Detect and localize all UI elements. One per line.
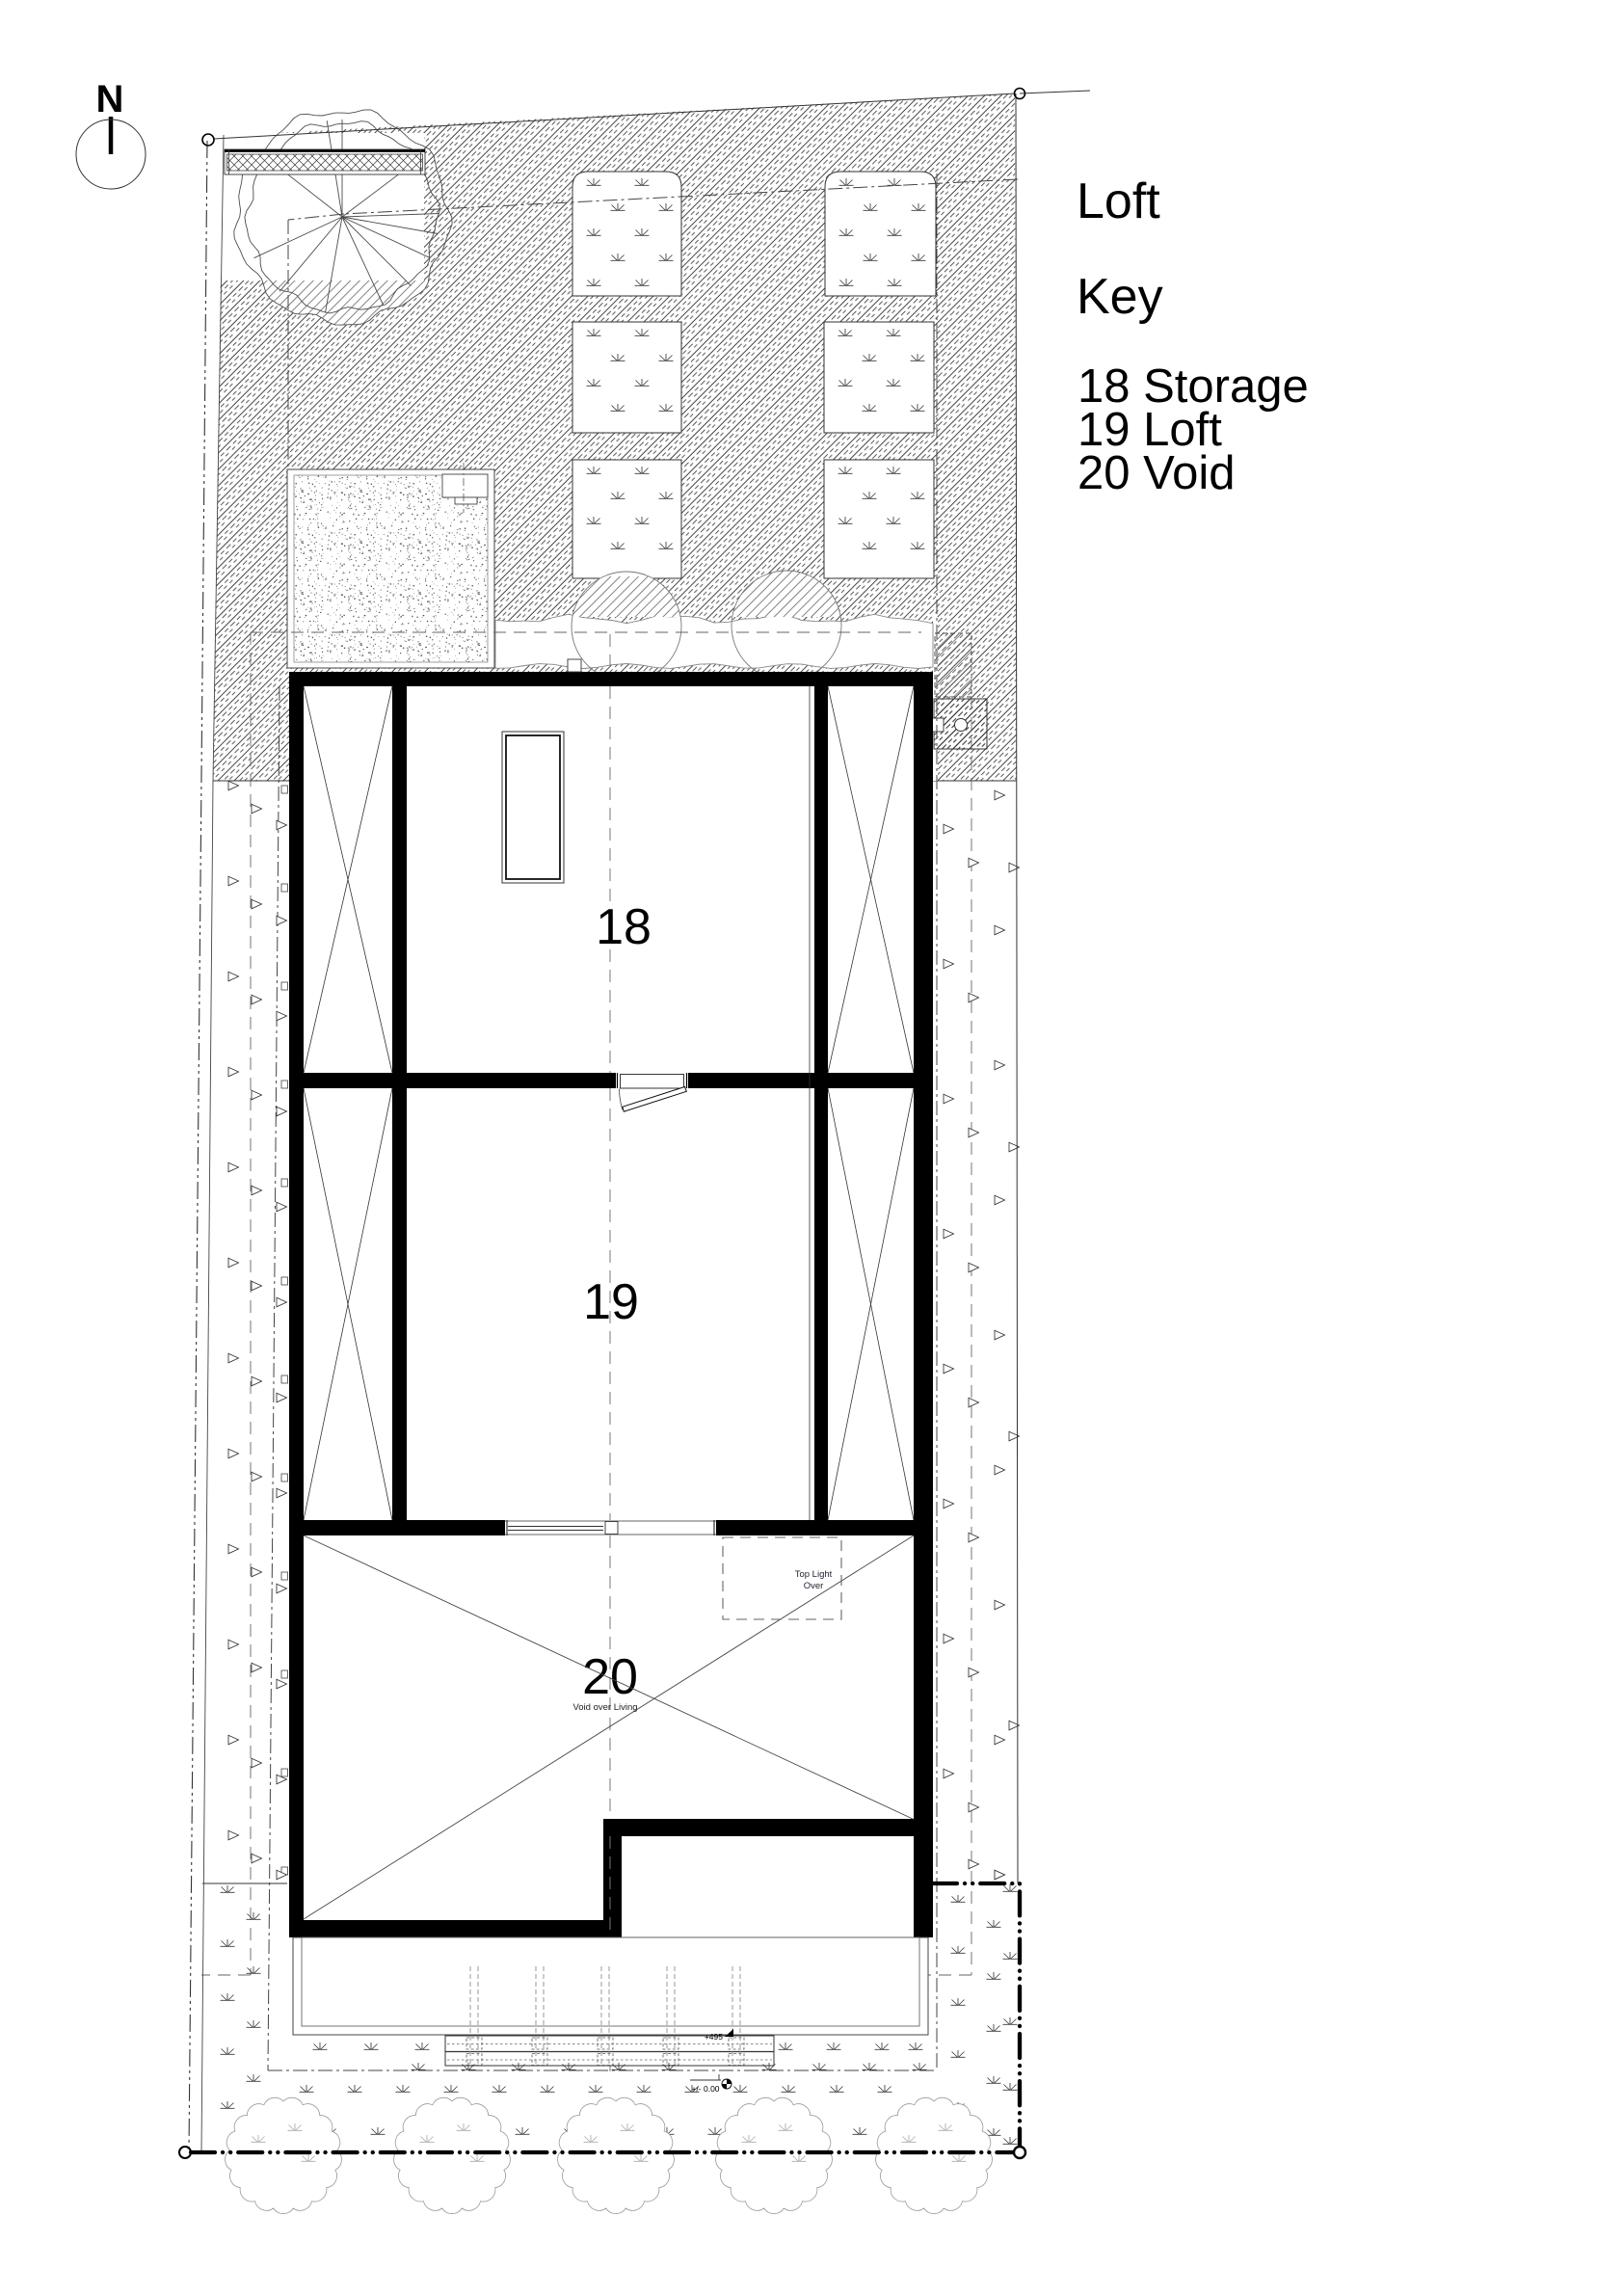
svg-text:Key: Key	[1077, 269, 1163, 325]
svg-text:20: 20	[582, 1649, 638, 1705]
svg-text:20 Void: 20 Void	[1078, 447, 1236, 499]
svg-text:19: 19	[583, 1274, 639, 1330]
svg-text:Over: Over	[804, 1581, 824, 1591]
svg-text:18: 18	[596, 899, 652, 955]
svg-text:Top Light: Top Light	[795, 1569, 833, 1580]
svg-text:N: N	[96, 78, 124, 120]
svg-text:Void over Living: Void over Living	[572, 1702, 637, 1713]
svg-text:Loft: Loft	[1077, 174, 1160, 229]
svg-text:+495: +495	[705, 2032, 723, 2042]
